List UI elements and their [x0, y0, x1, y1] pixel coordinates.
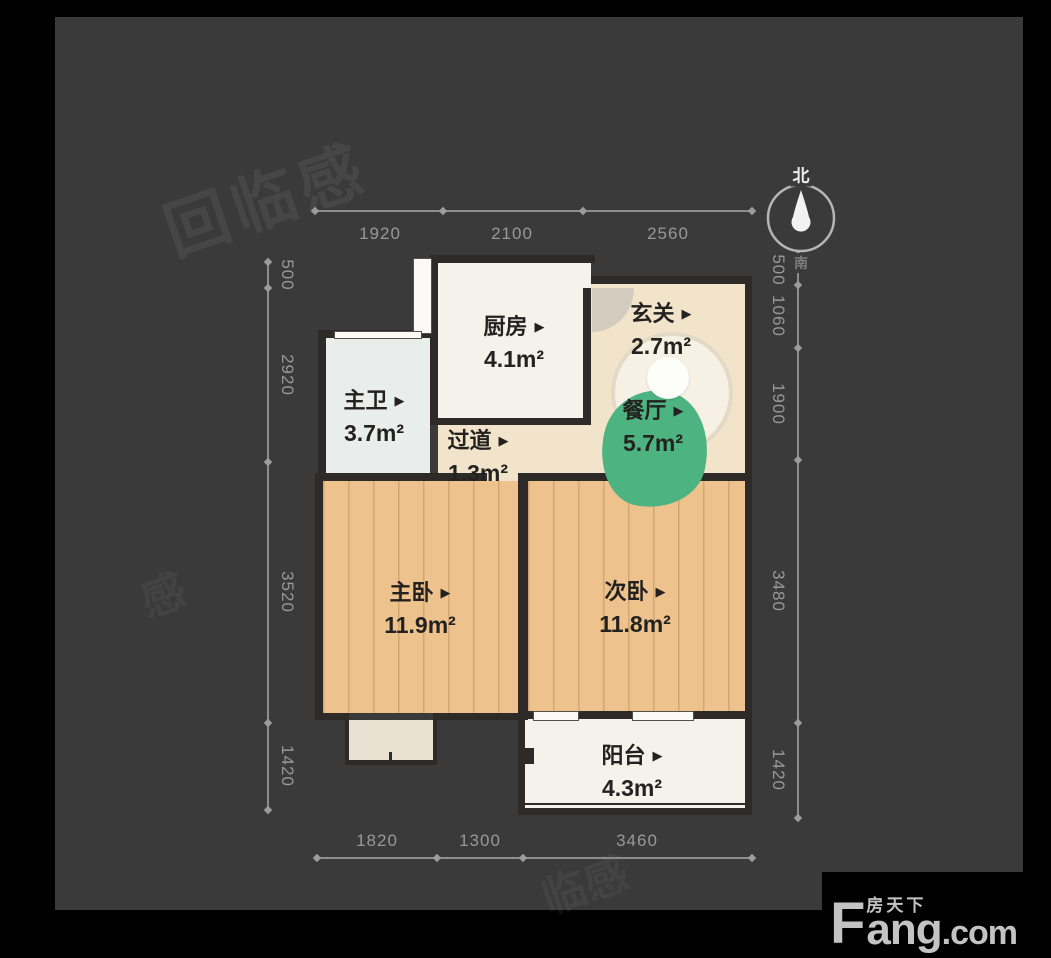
room-name-second-bedroom: 次卧 — [599, 574, 671, 606]
bay-window-side-right — [433, 720, 437, 765]
dim-right-3: 1900 — [768, 383, 788, 425]
dim-line-bottom — [317, 857, 752, 859]
room-label-kitchen: 厨房 4.1m² — [483, 309, 544, 373]
room-area-foyer: 2.7m² — [630, 333, 691, 360]
room-area-master-bedroom: 11.9m² — [384, 612, 456, 639]
balcony-window-2 — [632, 711, 694, 721]
room-label-second-bedroom: 次卧 11.8m² — [599, 574, 671, 638]
dim-right-5: 1420 — [768, 749, 788, 791]
dim-line-top — [315, 210, 752, 212]
balcony-window-1 — [533, 711, 579, 721]
wall-bath-right — [430, 338, 438, 425]
room-name-master-bedroom: 主卧 — [384, 575, 456, 607]
room-label-balcony: 阳台 4.3m² — [601, 738, 662, 802]
wall-master-bottom-left — [315, 713, 349, 720]
dim-left-3: 3520 — [277, 571, 297, 613]
room-name-corridor: 过道 — [447, 423, 508, 455]
dim-left-4: 1420 — [277, 745, 297, 787]
wall-bedroom-divider — [518, 481, 528, 720]
dim-left-1: 500 — [277, 259, 297, 290]
room-name-dining: 餐厅 — [622, 393, 683, 425]
wall-balcony-left — [518, 719, 525, 815]
wall-kitchen-right — [583, 288, 591, 425]
wall-master-bottom-right — [433, 713, 518, 720]
room-name-kitchen: 厨房 — [483, 309, 544, 341]
bath-window — [334, 331, 422, 339]
wall-balcony-right — [745, 719, 752, 815]
wall-bath-left — [318, 330, 326, 473]
logo-backdrop: F 房天下 ang .com — [822, 872, 1051, 958]
room-area-corridor: 1.3m² — [447, 460, 508, 487]
compass-south-label: 南 — [792, 253, 810, 273]
wall-right-outer — [745, 276, 752, 723]
fang-logo-f: F — [830, 901, 865, 946]
room-area-master-bath: 3.7m² — [343, 420, 404, 447]
room-name-master-bath: 主卫 — [343, 383, 404, 415]
wall-left-outer — [315, 473, 323, 720]
bay-window-side-left — [345, 720, 349, 765]
compass-north-label: 北 — [791, 162, 812, 187]
kitchen-door-opening — [583, 263, 591, 288]
room-name-foyer: 玄关 — [630, 296, 691, 328]
room-label-master-bedroom: 主卧 11.9m² — [384, 575, 456, 639]
room-label-dining: 餐厅 5.7m² — [622, 393, 683, 457]
room-area-kitchen: 4.1m² — [483, 346, 544, 373]
fang-logo-mid: 房天下 ang — [866, 897, 941, 946]
room-area-dining: 5.7m² — [622, 430, 683, 457]
fang-logo-ang: ang — [866, 914, 941, 946]
wall-balcony-bottom — [518, 808, 752, 815]
wall-foyer-top — [583, 276, 752, 284]
dim-bottom-2: 1300 — [459, 831, 501, 851]
fang-logo-dotcom: .com — [942, 922, 1017, 946]
floorplan-screenshot: 回临感 感 临感 1920 2100 2560 1820 1300 3460 5… — [0, 0, 1051, 958]
dim-line-left — [267, 262, 269, 810]
dim-left-2: 2920 — [277, 354, 297, 396]
room-label-master-bath: 主卫 3.7m² — [343, 383, 404, 447]
fang-logo: F 房天下 ang .com — [830, 897, 1017, 946]
room-area-balcony: 4.3m² — [601, 775, 662, 802]
room-name-balcony: 阳台 — [601, 738, 662, 770]
dim-right-2: 1060 — [768, 295, 788, 337]
kitchen-exterior-window — [413, 258, 432, 334]
dim-top-1: 1920 — [359, 224, 401, 244]
dim-bottom-1: 1820 — [356, 831, 398, 851]
room-area-second-bedroom: 11.8m² — [599, 611, 671, 638]
bay-window-tick — [389, 752, 392, 761]
wall-kitchen-top — [430, 255, 595, 263]
dim-line-right — [797, 255, 799, 818]
dim-top-2: 2100 — [491, 224, 533, 244]
dim-right-4: 3480 — [768, 570, 788, 612]
dim-bottom-3: 3460 — [616, 831, 658, 851]
dim-top-3: 2560 — [647, 224, 689, 244]
wall-balcony-nub — [518, 748, 534, 764]
room-label-foyer: 玄关 2.7m² — [630, 296, 691, 360]
balcony-railing-line — [525, 803, 745, 805]
room-label-corridor: 过道 1.3m² — [447, 423, 508, 487]
